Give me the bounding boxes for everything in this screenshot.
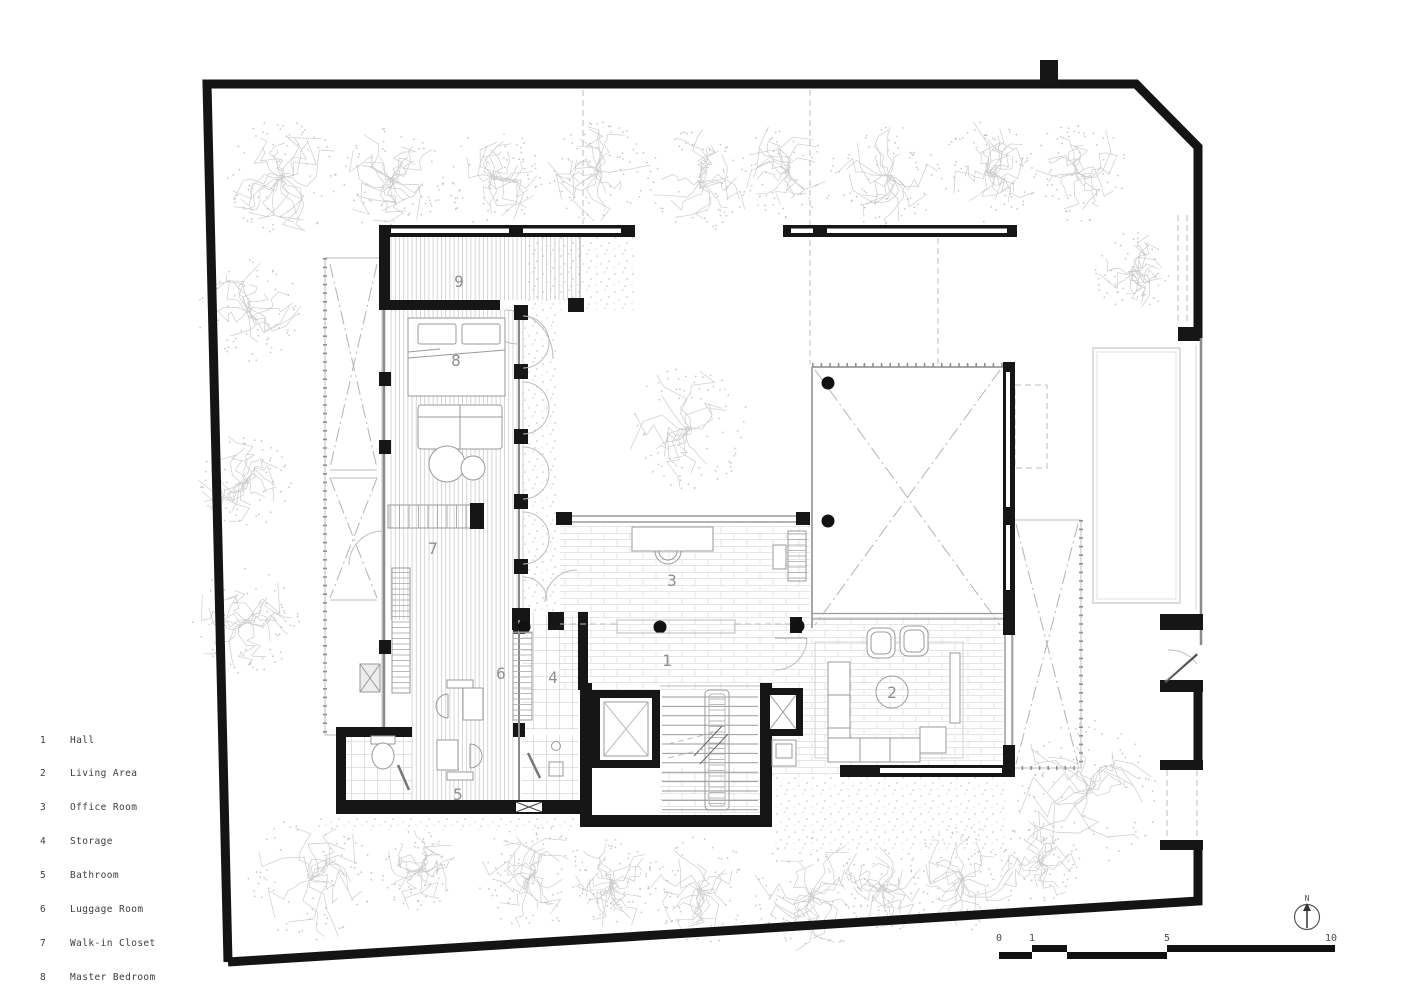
- tree: [1032, 126, 1124, 221]
- legend-row: 6Luggage Room: [40, 904, 156, 915]
- legend-row: 5Bathroom: [40, 870, 156, 881]
- tree: [1096, 233, 1169, 307]
- legend-name: Bathroom: [70, 870, 119, 881]
- floor-drain: [549, 762, 563, 776]
- toilet: [371, 736, 395, 769]
- bookshelf: [788, 531, 806, 581]
- legend-name: Walk-in Closet: [70, 938, 156, 949]
- north-arrow: N: [1295, 894, 1320, 930]
- label-hall: 1: [662, 651, 672, 670]
- scale-5: 5: [1164, 933, 1170, 944]
- legend-row: 4Storage: [40, 836, 156, 847]
- side-table: [920, 727, 946, 753]
- legend-name: Storage: [70, 836, 113, 847]
- legend-name: Office Room: [70, 802, 137, 813]
- tree: [575, 840, 656, 926]
- scale-0: 0: [996, 933, 1002, 944]
- room-legend: 1Hall 2Living Area 3Office Room 4Storage…: [40, 712, 156, 1000]
- label-storage9: 9: [454, 272, 464, 291]
- label-living: 2: [887, 683, 897, 702]
- terrace-gravel: [772, 777, 1005, 850]
- tree: [939, 122, 1035, 222]
- tree: [742, 127, 836, 218]
- tree: [837, 127, 937, 233]
- legend-number: 7: [40, 938, 70, 949]
- legend-number: 5: [40, 870, 70, 881]
- legend-row: 8Master Bedroom: [40, 972, 156, 983]
- tree: [344, 129, 443, 229]
- label-storage4: 4: [548, 668, 558, 687]
- legend-number: 8: [40, 972, 70, 983]
- north-label: N: [1305, 894, 1310, 903]
- legend-name: Master Bedroom: [70, 972, 156, 983]
- boundary-notch: [1040, 60, 1058, 86]
- tree: [480, 828, 582, 927]
- legend-name: Hall: [70, 735, 94, 746]
- console-table: [950, 653, 960, 723]
- floor-plan-sheet: 1 2 3 4 5 6 7 8 9 N 0 1 5 10 1Hall 2Livi…: [0, 0, 1415, 1000]
- legend-number: 2: [40, 768, 70, 779]
- legend-number: 3: [40, 802, 70, 813]
- vehicle-gate: [1160, 760, 1203, 850]
- label-bedroom: 8: [451, 351, 461, 370]
- floor-plan-drawing: 1 2 3 4 5 6 7 8 9 N 0 1 5 10: [0, 0, 1415, 1000]
- wardrobe: [388, 505, 472, 528]
- legend-row: 1Hall: [40, 735, 156, 746]
- side-planter: [1093, 348, 1180, 603]
- tree: [1001, 821, 1077, 900]
- legend-number: 4: [40, 836, 70, 847]
- legend-number: 1: [40, 735, 70, 746]
- elevator: [592, 690, 660, 768]
- scale-bar: 0 1 5 10: [996, 933, 1337, 959]
- label-luggage: 6: [496, 664, 506, 683]
- luggage-shelf: [513, 632, 532, 720]
- tree: [443, 134, 542, 222]
- legend-name: Living Area: [70, 768, 137, 779]
- tree: [193, 569, 299, 673]
- bedroom-sofa: [418, 405, 502, 449]
- pedestrian-gate: [1160, 614, 1203, 692]
- hall-floor: [560, 620, 812, 690]
- label-office: 3: [667, 571, 677, 590]
- tree: [630, 370, 745, 489]
- round-table: [429, 446, 465, 482]
- tree: [648, 837, 742, 941]
- tree: [248, 822, 371, 940]
- left-deck: [325, 258, 382, 735]
- tree: [548, 122, 650, 220]
- round-stool: [461, 456, 485, 480]
- tree: [383, 830, 454, 909]
- right-deck: [1013, 520, 1081, 768]
- label-bathroom: 5: [453, 785, 463, 804]
- tree: [648, 129, 745, 229]
- legend-row: 7Walk-in Closet: [40, 938, 156, 949]
- legend-number: 6: [40, 904, 70, 915]
- legend-row: 3Office Room: [40, 802, 156, 813]
- label-closet: 7: [428, 539, 438, 558]
- tree: [1018, 721, 1155, 861]
- legend-row: 2Living Area: [40, 768, 156, 779]
- scale-10: 10: [1325, 933, 1337, 944]
- void-double-height: [812, 365, 1003, 628]
- legend-name: Luggage Room: [70, 904, 143, 915]
- tree: [755, 838, 865, 951]
- closet-shelf: [392, 568, 410, 693]
- scale-1: 1: [1029, 933, 1035, 944]
- tree: [228, 123, 336, 232]
